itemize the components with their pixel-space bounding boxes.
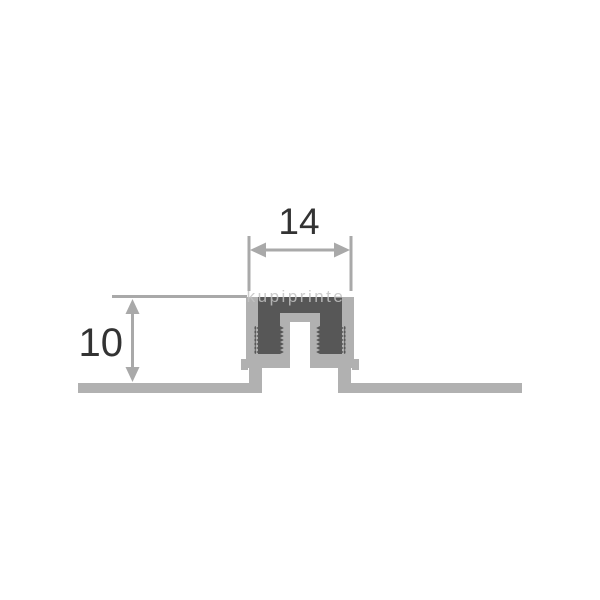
serration-right-inner <box>317 326 321 354</box>
right-barb <box>352 359 359 370</box>
serration-right-outer <box>342 326 346 354</box>
right-stub <box>338 368 351 383</box>
width-arrowhead-right <box>334 243 350 258</box>
width-extension-line-left <box>248 236 251 291</box>
insert-left-leg <box>258 313 280 354</box>
serration-left-inner <box>280 326 284 354</box>
right-flange <box>338 383 522 393</box>
profile-cross-section-drawing: kupiprinte 14 10 <box>0 0 600 600</box>
width-dimension-label: 14 <box>278 201 319 242</box>
insert-right-leg <box>320 313 342 354</box>
height-arrowhead-bottom <box>126 367 140 382</box>
width-extension-line-right <box>350 236 353 291</box>
width-arrow-shaft <box>253 249 347 252</box>
watermark-text: kupiprinte <box>247 287 346 306</box>
height-arrow-shaft <box>131 305 134 377</box>
height-dimension-label: 10 <box>79 321 124 365</box>
height-extension-line <box>112 295 247 298</box>
left-stub <box>249 368 262 383</box>
width-arrowhead-left <box>250 243 266 258</box>
width-dimension <box>248 236 353 291</box>
height-dimension <box>112 295 247 382</box>
left-flange <box>78 383 262 393</box>
left-barb <box>241 359 248 370</box>
drawing-canvas: kupiprinte 14 10 <box>0 0 600 600</box>
height-arrowhead-top <box>126 299 140 314</box>
serration-left-outer <box>255 326 259 354</box>
